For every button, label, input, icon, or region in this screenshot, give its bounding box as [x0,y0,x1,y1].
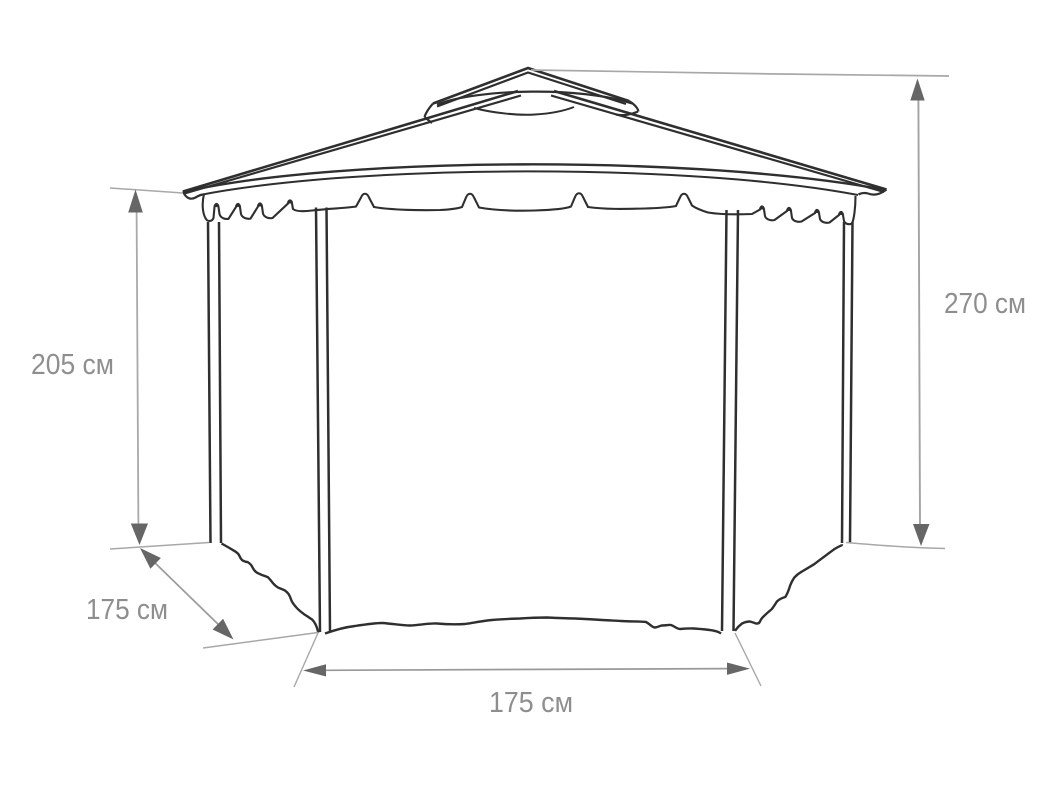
svg-text:270 см: 270 см [944,288,1026,320]
svg-text:205 см: 205 см [31,349,114,381]
svg-text:175 см: 175 см [489,687,573,719]
svg-text:175 см: 175 см [86,594,168,626]
